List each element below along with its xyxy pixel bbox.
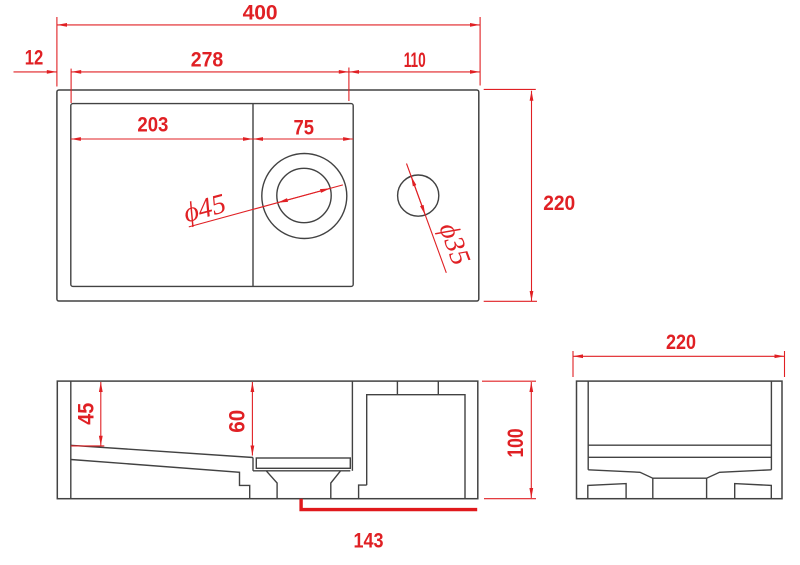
svg-text:203: 203 — [137, 114, 168, 137]
svg-text:220: 220 — [543, 192, 575, 215]
svg-text:ϕ35: ϕ35 — [432, 219, 476, 270]
svg-text:60: 60 — [224, 410, 249, 433]
svg-text:ϕ45: ϕ45 — [180, 188, 229, 229]
svg-text:143: 143 — [354, 529, 384, 552]
svg-text:75: 75 — [293, 117, 314, 140]
svg-text:45: 45 — [74, 403, 99, 425]
svg-text:278: 278 — [191, 49, 224, 72]
svg-text:220: 220 — [666, 331, 696, 354]
svg-text:12: 12 — [25, 47, 44, 70]
svg-text:100: 100 — [503, 429, 528, 458]
svg-text:110: 110 — [404, 49, 426, 72]
svg-text:400: 400 — [243, 2, 278, 25]
